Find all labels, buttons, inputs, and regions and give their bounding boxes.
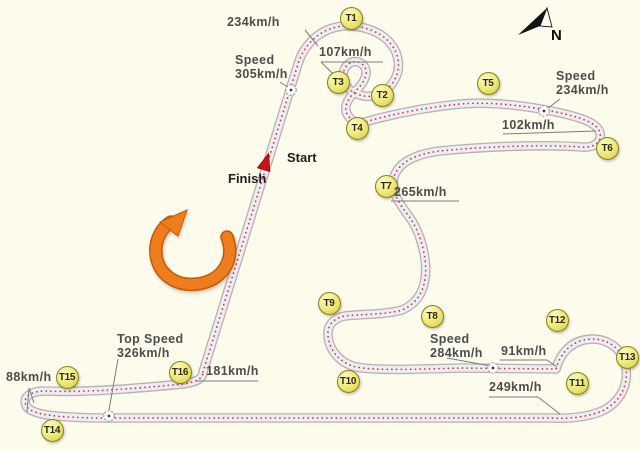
- speed-label-line: 88km/h: [6, 371, 51, 385]
- speed-label-line: 249km/h: [489, 381, 542, 395]
- turn-badge-t2: T2: [371, 84, 394, 107]
- speed-label-line: 265km/h: [394, 186, 447, 200]
- speed-label-line: Speed: [235, 54, 288, 68]
- speed-label-line: 234km/h: [227, 16, 280, 30]
- turn-badge-t6: T6: [596, 137, 619, 160]
- circuit-svg: [0, 0, 640, 451]
- track-centerline-dots: [25, 26, 626, 418]
- speed-label-326: Top Speed326km/h: [117, 333, 184, 360]
- speed-label-line: 305km/h: [235, 68, 288, 82]
- north-compass-icon: [518, 8, 552, 35]
- speed-label-102: 102km/h: [502, 119, 555, 133]
- speed-label-line: 326km/h: [117, 347, 184, 361]
- speed-label-line: 91km/h: [501, 345, 546, 359]
- speed-label-249: 249km/h: [489, 381, 542, 395]
- speed-label-284: Speed284km/h: [430, 333, 483, 360]
- turn-badge-t15: T15: [56, 366, 79, 389]
- turn-badge-t10: T10: [337, 370, 360, 393]
- speed-label-265: 265km/h: [394, 186, 447, 200]
- turn-badge-t16: T16: [169, 361, 192, 384]
- turn-badge-t9: T9: [318, 292, 341, 315]
- speed-label-234-right: Speed234km/h: [556, 70, 609, 97]
- turn-badge-t3: T3: [327, 71, 350, 94]
- finish-label: Finish: [228, 171, 266, 186]
- turn-badge-t5: T5: [477, 72, 500, 95]
- track-surface: [25, 26, 626, 418]
- speed-label-line: 234km/h: [556, 84, 609, 98]
- speed-label-line: 181km/h: [206, 365, 259, 379]
- track-map: Start Finish N T1T2T3T4T5T6T7T8T9T10T11T…: [0, 0, 640, 451]
- speed-label-line: Speed: [556, 70, 609, 84]
- speed-marker-icon: [488, 363, 498, 373]
- leader-line-249: [538, 397, 560, 414]
- start-label: Start: [287, 150, 317, 165]
- speed-label-line: 284km/h: [430, 347, 483, 361]
- speed-label-line: 102km/h: [502, 119, 555, 133]
- track-outline: [25, 26, 626, 418]
- speed-label-88: 88km/h: [6, 371, 51, 385]
- speed-label-181: 181km/h: [206, 365, 259, 379]
- direction-arrow-icon: [156, 210, 230, 284]
- leader-line-326: [109, 359, 118, 410]
- speed-label-91: 91km/h: [501, 345, 546, 359]
- turn-badge-t8: T8: [421, 305, 444, 328]
- speed-marker-icon: [286, 85, 296, 95]
- speed-marker-icon: [539, 106, 549, 116]
- turn-badge-t13: T13: [616, 346, 639, 369]
- turn-badge-t14: T14: [41, 419, 64, 442]
- speed-marker-icon: [104, 411, 114, 421]
- compass-north-label: N: [551, 27, 562, 44]
- speed-label-line: Speed: [430, 333, 483, 347]
- speed-label-305: Speed305km/h: [235, 54, 288, 81]
- speed-label-234-top: 234km/h: [227, 16, 280, 30]
- speed-label-107: 107km/h: [319, 46, 372, 60]
- speed-label-line: 107km/h: [319, 46, 372, 60]
- speed-label-line: Top Speed: [117, 333, 184, 347]
- turn-badge-t4: T4: [346, 117, 369, 140]
- turn-badge-t12: T12: [546, 309, 569, 332]
- turn-badge-t11: T11: [566, 372, 589, 395]
- turn-badge-t1: T1: [340, 7, 363, 30]
